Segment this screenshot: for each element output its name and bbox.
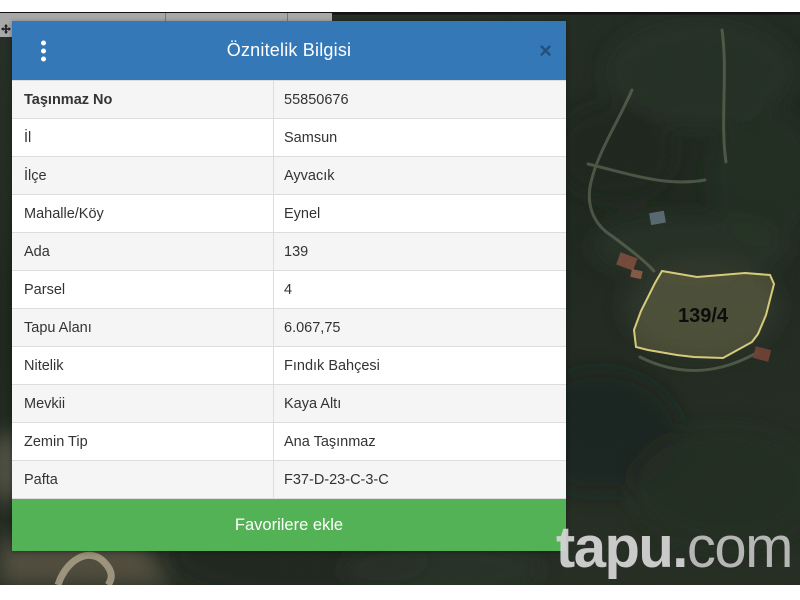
table-row: Parsel 4 [12,271,566,309]
panel-title: Öznitelik Bilgisi [12,21,566,80]
row-value: 6.067,75 [274,309,566,346]
watermark-light-part: com [687,515,792,580]
toolbar-separator [165,13,166,21]
row-value: Samsun [274,119,566,156]
table-row: İl Samsun [12,119,566,157]
table-row: İlçe Ayvacık [12,157,566,195]
attribute-table: Taşınmaz No 55850676 İl Samsun İlçe Ayva… [12,80,566,499]
toolbar-separator [287,13,288,21]
watermark-bold-part: tapu. [556,515,687,580]
row-value: Kaya Altı [274,385,566,422]
row-label: Mevkii [12,385,274,422]
row-label: Taşınmaz No [12,81,274,118]
row-value: 139 [274,233,566,270]
panel-header: Öznitelik Bilgisi × [12,21,566,80]
row-label: Zemin Tip [12,423,274,460]
row-value: Ayvacık [274,157,566,194]
close-icon[interactable]: × [539,40,552,62]
table-row: Ada 139 [12,233,566,271]
table-row: Pafta F37-D-23-C-3-C [12,461,566,499]
row-value: Ana Taşınmaz [274,423,566,460]
table-row: Mevkii Kaya Altı [12,385,566,423]
table-row: Zemin Tip Ana Taşınmaz [12,423,566,461]
table-row: Nitelik Fındık Bahçesi [12,347,566,385]
row-label: İlçe [12,157,274,194]
move-icon [1,24,11,34]
row-label: Parsel [12,271,274,308]
row-value: Eynel [274,195,566,232]
table-row: Mahalle/Köy Eynel [12,195,566,233]
tapu-com-watermark: tapu.com [556,519,792,577]
row-value: 55850676 [274,81,566,118]
table-row: Tapu Alanı 6.067,75 [12,309,566,347]
row-label: Mahalle/Köy [12,195,274,232]
row-value: F37-D-23-C-3-C [274,461,566,498]
row-label: Ada [12,233,274,270]
table-row: Taşınmaz No 55850676 [12,81,566,119]
row-label: Nitelik [12,347,274,384]
pan-control[interactable] [0,20,12,37]
row-label: İl [12,119,274,156]
add-to-favorites-button[interactable]: Favorilere ekle [12,499,566,551]
row-value: 4 [274,271,566,308]
row-label: Tapu Alanı [12,309,274,346]
menu-dots-icon[interactable] [38,37,49,64]
row-label: Pafta [12,461,274,498]
row-value: Fındık Bahçesi [274,347,566,384]
attribute-info-panel: Öznitelik Bilgisi × Taşınmaz No 55850676… [12,21,566,551]
background-toolbar-strip [0,13,332,21]
parcel-label: 139/4 [678,305,729,327]
